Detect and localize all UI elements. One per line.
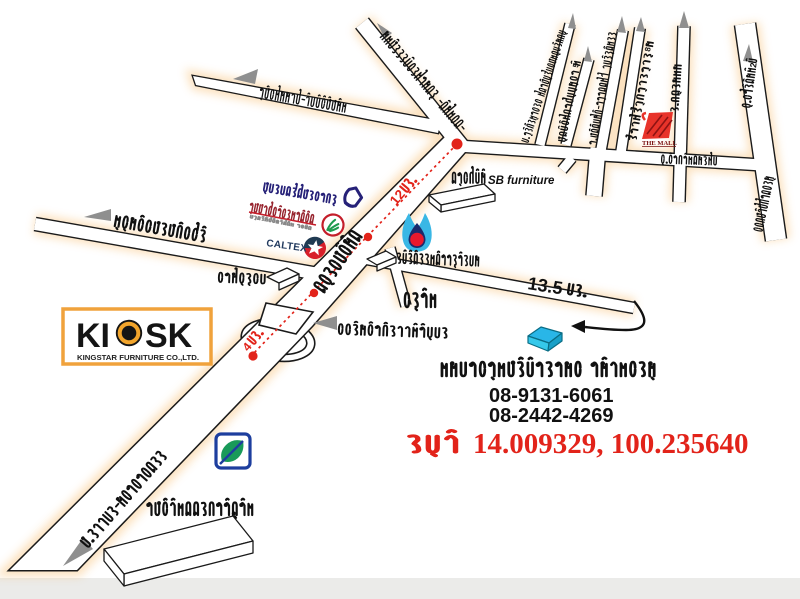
svg-text:SK: SK	[145, 317, 193, 355]
svg-text:THE MALL: THE MALL	[642, 140, 678, 147]
svg-text:14.009329, 100.235640: 14.009329, 100.235640	[473, 428, 749, 460]
svg-text:SB furniture: SB furniture	[488, 175, 555, 187]
svg-text:08-9131-6061: 08-9131-6061	[489, 385, 614, 407]
svg-text:08-2442-4269: 08-2442-4269	[489, 405, 614, 427]
svg-text:KI: KI	[76, 317, 110, 355]
svg-text:KINGSTAR FURNITURE CO.,LTD.: KINGSTAR FURNITURE CO.,LTD.	[77, 353, 199, 362]
